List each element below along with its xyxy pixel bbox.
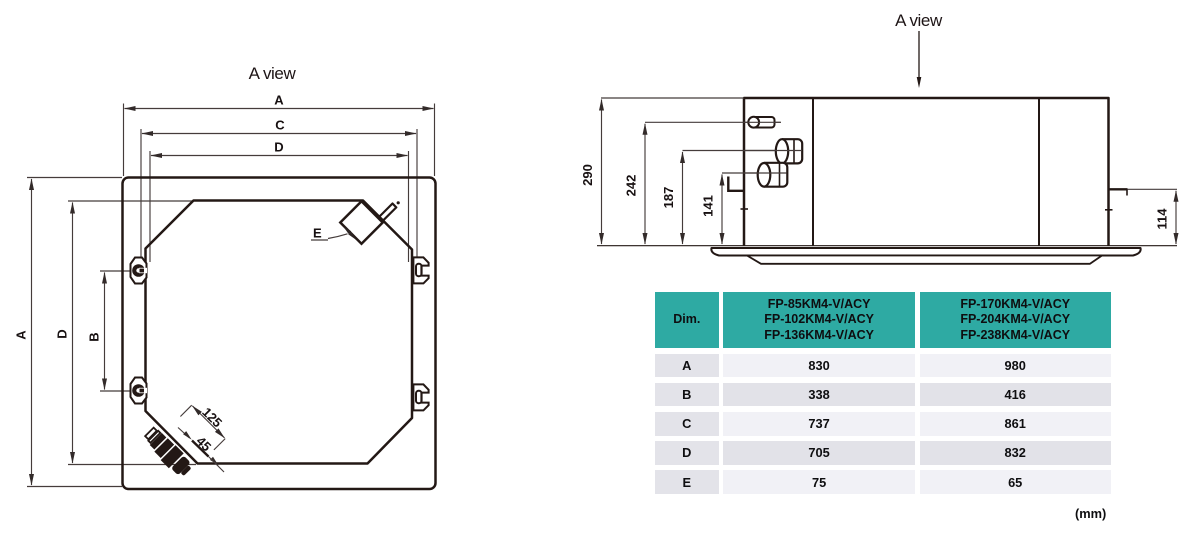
svg-text:B: B: [87, 332, 102, 341]
svg-text:A view: A view: [895, 11, 943, 30]
svg-text:45: 45: [193, 433, 214, 454]
svg-text:E: E: [313, 226, 322, 241]
svg-text:125: 125: [199, 404, 225, 430]
svg-text:187: 187: [661, 187, 676, 209]
svg-text:A: A: [14, 330, 29, 340]
svg-text:114: 114: [1155, 208, 1170, 230]
svg-text:A view: A view: [249, 64, 297, 83]
svg-text:A: A: [274, 93, 284, 108]
svg-text:C: C: [275, 118, 285, 133]
svg-text:290: 290: [580, 164, 595, 186]
svg-text:141: 141: [701, 195, 716, 217]
svg-text:D: D: [274, 140, 283, 155]
svg-text:242: 242: [624, 175, 639, 197]
svg-text:D: D: [55, 329, 70, 338]
